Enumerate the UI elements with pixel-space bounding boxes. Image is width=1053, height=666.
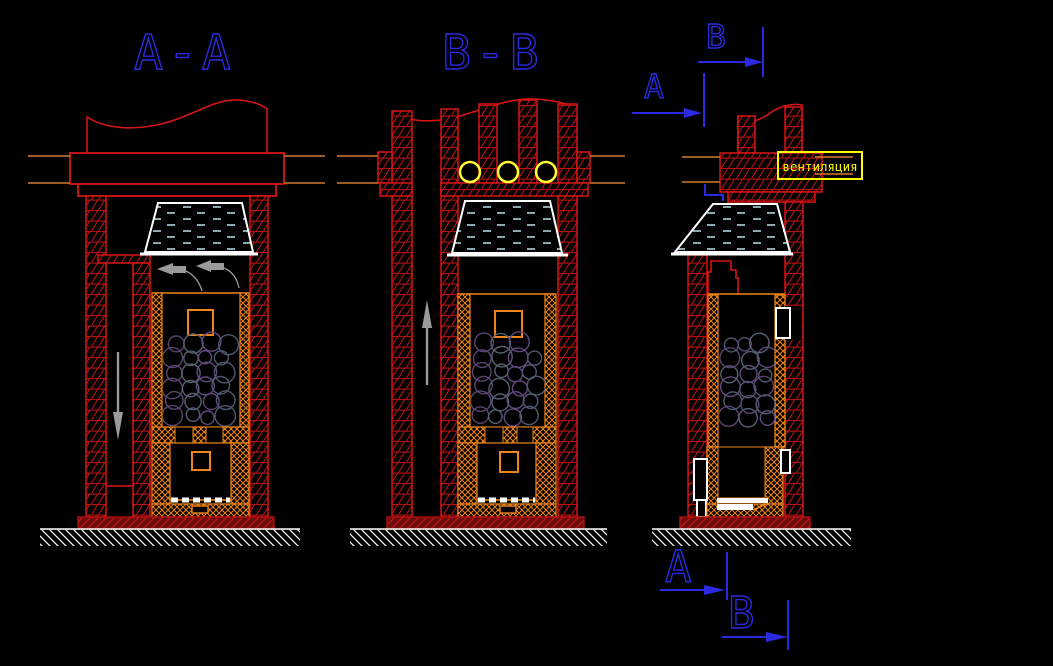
grate-bar [717,498,768,503]
plinth [680,517,810,529]
water-tank [452,201,562,253]
cut-mark-a-top: A [632,67,704,127]
stone-load-door [776,308,790,338]
airflow-up-arrow-icon [422,300,432,385]
section-aa-label: A-A [134,25,236,81]
view-section-a-a: A-A [28,25,325,546]
view-section-b-b: B-B [337,25,625,546]
firebox-door-side [694,459,707,500]
flue-pier [479,104,497,183]
cut-letter-a: A [644,67,664,106]
chamber-lining-left [708,295,718,447]
steam-funnel [708,261,738,294]
right-wall [558,104,577,517]
chimney-wall [738,116,755,153]
flue-box-step [78,184,276,196]
flue-pier [519,100,537,183]
firebox-top-band [458,427,556,443]
slab-stub-right [577,152,590,183]
chamber-lining-left [458,294,470,427]
ash-pan [500,506,516,513]
chimney-wall [785,107,802,153]
cut-letter-b: B [706,17,726,56]
ground-hatch [40,529,300,546]
cut-mark-b-bottom: B [722,588,788,650]
vent-hole-icons [460,162,556,182]
firebox-lining-left [152,443,170,504]
view-side-section: B A вентиляция [632,17,862,650]
slab-step [728,192,815,202]
slab-step [380,183,412,196]
left-wall [86,196,106,517]
lintel [98,255,150,263]
flue-box-section [70,153,284,184]
firebox-interior [718,447,765,498]
chamber-lining-right [545,294,556,427]
section-bb-label: B-B [442,25,544,81]
stones [162,332,239,426]
firebox-door [500,452,518,472]
inner-partition [133,263,150,517]
right-wall [250,196,268,517]
water-tank [145,203,253,252]
slab-step [441,183,588,196]
firebox-lining-left [458,443,477,504]
cut-letter-a: A [665,542,692,593]
steam-flow-arrows-icon [157,260,239,291]
break-line-wall [87,100,267,153]
cut-mark-a-bottom: A [660,542,727,600]
riser-partition [441,109,458,517]
cad-drawing-canvas[interactable]: A-A [0,0,1053,666]
firebox-lining-left [707,447,718,504]
firebox-top-band [152,427,249,443]
plinth [387,517,584,529]
air-gap [485,427,503,443]
air-gap [206,427,223,443]
slab-stub-left [378,152,392,183]
ground-hatch [350,529,607,546]
cut-arrow-icon [766,632,788,642]
firebox-lining-right [536,443,556,504]
ash-door-side [697,500,706,517]
ventilation-text: вентиляция [782,159,857,174]
cut-arrow-icon [704,585,725,595]
ash-tray [717,504,753,510]
firebox-door [192,452,210,470]
left-wall [392,111,412,517]
cut-letter-b: B [728,588,755,639]
air-gap [517,427,533,443]
firebox-lining-right [231,443,249,504]
damper-handle [781,450,790,473]
chamber-lining-right [240,293,249,427]
plinth [78,517,274,529]
chamber-lining-left [152,293,162,427]
stove-sections-drawing: A-A [0,0,1053,666]
water-tank [675,204,790,252]
airflow-down-arrow-icon [113,352,123,440]
ash-pan [192,506,208,513]
cut-mark-b-top: B [698,17,763,77]
cut-arrow-icon [684,108,702,118]
cut-arrow-icon [745,57,763,67]
steam-opening [188,310,213,335]
air-gap [175,427,193,443]
stones [470,332,545,426]
stones [719,333,778,427]
